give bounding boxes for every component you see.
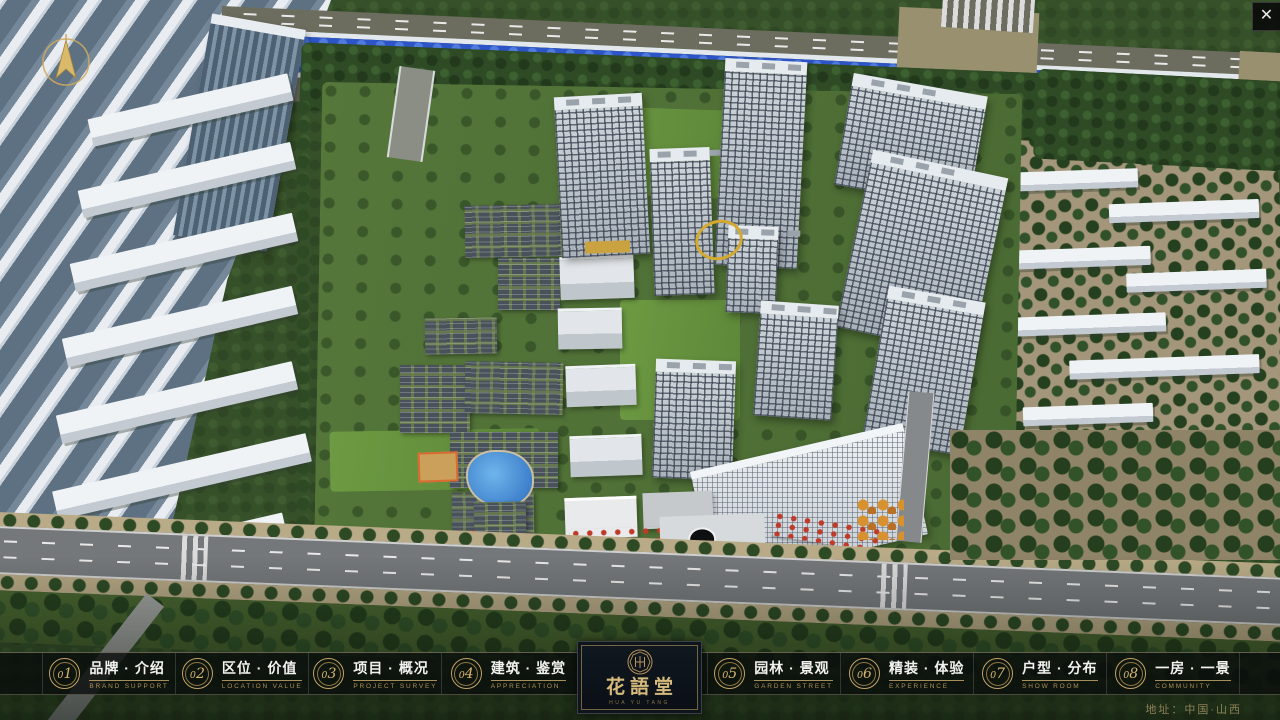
nav-item-badge: 03 xyxy=(313,658,344,689)
nav-item-room-view[interactable]: 08 一房 · 一景 COMMUNITY xyxy=(1106,653,1240,694)
nav-item-text: 户型 · 分布 SHOW ROOM xyxy=(1022,658,1097,690)
nav-item-label-zh: 园林 · 景观 xyxy=(754,658,833,681)
nav-item-label-en: BRAND SUPPORT xyxy=(89,683,168,690)
nav-item-label-zh: 精装 · 体验 xyxy=(889,658,964,681)
nav-item-number: 04 xyxy=(459,667,474,681)
project-name: 花語堂 xyxy=(601,678,678,697)
nav-item-layout[interactable]: 07 户型 · 分布 SHOW ROOM xyxy=(973,653,1106,694)
midrise-building xyxy=(558,307,623,349)
project-name-caption: HUA YU TANG xyxy=(609,700,670,706)
estate-slab xyxy=(1023,403,1154,427)
nav-item-text: 园林 · 景观 GARDEN STREET xyxy=(754,658,833,690)
nav-item-number: 01 xyxy=(57,667,72,681)
residential-tower xyxy=(649,147,714,296)
nav-item-text: 一房 · 一景 COMMUNITY xyxy=(1155,658,1230,690)
crosswalk xyxy=(880,564,908,609)
nav-item-label-zh: 区位 · 价值 xyxy=(222,658,303,681)
courtyard-cluster xyxy=(400,365,470,433)
clubhouse xyxy=(417,451,458,482)
nav-item-badge: 08 xyxy=(1115,658,1146,689)
midrise-building xyxy=(559,255,634,301)
nav-item-number: 03 xyxy=(321,667,336,681)
nav-item-number: 05 xyxy=(722,667,737,681)
nav-item-label-zh: 项目 · 概况 xyxy=(353,658,437,681)
nav-item-text: 区位 · 价值 LOCATION VALUE xyxy=(222,658,303,690)
nav-item-text: 建筑 · 鉴赏 APPRECIATION xyxy=(491,658,566,690)
close-button[interactable]: ✕ xyxy=(1252,2,1280,31)
nav-item-text: 项目 · 概况 PROJECT SURVEY xyxy=(353,658,437,690)
nav-item-label-en: EXPERIENCE xyxy=(889,683,964,690)
nav-item-badge: 01 xyxy=(49,658,80,689)
nav-item-label-zh: 品牌 · 介绍 xyxy=(89,658,168,681)
courtyard-cluster xyxy=(465,204,566,258)
masterplan-3d-view[interactable]: ✕ 01 品牌 · 介绍 BRAND SUPPORT 02 区位 · 价值 L xyxy=(0,0,1280,720)
nav-item-label-en: COMMUNITY xyxy=(1155,683,1230,690)
east-forest xyxy=(1033,69,1280,172)
compass-icon xyxy=(34,28,98,92)
nav-item-label-zh: 户型 · 分布 xyxy=(1022,658,1097,681)
nav-item-label-en: APPRECIATION xyxy=(491,683,566,690)
project-address: 地址：中国·山西 xyxy=(1145,701,1242,717)
nav-item-label-zh: 一房 · 一景 xyxy=(1155,658,1230,681)
autumn-trees xyxy=(856,498,904,540)
residential-tower xyxy=(652,359,736,481)
residential-tower xyxy=(753,300,839,420)
project-logo-panel[interactable]: 花語堂 HUA YU TANG xyxy=(577,641,702,714)
estate-slab xyxy=(1126,269,1267,293)
nav-item-location[interactable]: 02 区位 · 价值 LOCATION VALUE xyxy=(175,653,308,694)
estate-slab xyxy=(1109,199,1260,223)
nav-item-label-en: SHOW ROOM xyxy=(1022,683,1097,690)
midrise-building xyxy=(565,364,636,407)
nav-item-number: 02 xyxy=(190,667,205,681)
nav-item-number: 07 xyxy=(990,667,1005,681)
nav-item-badge: 07 xyxy=(982,658,1013,689)
midrise-building xyxy=(569,434,642,477)
crosswalk xyxy=(181,535,209,580)
golden-deck xyxy=(585,240,630,254)
nav-item-number: 08 xyxy=(1123,667,1138,681)
nav-item-label-zh: 建筑 · 鉴赏 xyxy=(491,658,566,681)
nav-item-badge: 05 xyxy=(714,658,745,689)
nav-item-brand[interactable]: 01 品牌 · 介绍 BRAND SUPPORT xyxy=(42,653,175,694)
estate-slab xyxy=(1069,354,1260,380)
southeast-grove xyxy=(950,430,1280,560)
nav-item-garden[interactable]: 05 园林 · 景观 GARDEN STREET xyxy=(707,653,840,694)
nav-item-label-en: LOCATION VALUE xyxy=(222,683,303,690)
courtyard-cluster xyxy=(465,361,564,415)
nav-item-label-en: GARDEN STREET xyxy=(754,683,833,690)
nav-item-decoration[interactable]: 06 精装 · 体验 EXPERIENCE xyxy=(840,653,973,694)
nav-item-text: 品牌 · 介绍 BRAND SUPPORT xyxy=(89,658,168,690)
nav-item-project[interactable]: 03 项目 · 概况 PROJECT SURVEY xyxy=(308,653,441,694)
nav-item-number: 06 xyxy=(857,667,872,681)
nav-item-label-en: PROJECT SURVEY xyxy=(353,683,437,690)
courtyard-cluster xyxy=(498,258,560,310)
nav-item-architecture[interactable]: 04 建筑 · 鉴赏 APPRECIATION xyxy=(441,653,574,694)
estate-slab xyxy=(1018,168,1139,191)
nav-item-badge: 02 xyxy=(182,658,213,689)
estate-slab xyxy=(1016,312,1167,336)
nav-item-badge: 04 xyxy=(451,658,482,689)
estate-slab xyxy=(1015,246,1151,270)
logo-seal-icon xyxy=(627,649,653,675)
nav-item-text: 精装 · 体验 EXPERIENCE xyxy=(889,658,964,690)
courtyard-cluster xyxy=(425,317,498,354)
residential-tower xyxy=(554,93,650,258)
nav-item-badge: 06 xyxy=(849,658,880,689)
